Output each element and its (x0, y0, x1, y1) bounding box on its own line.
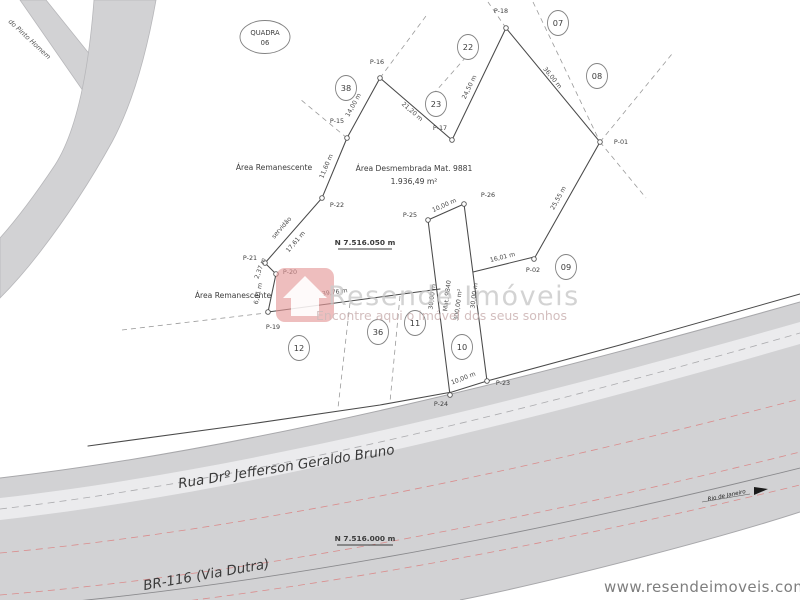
measure-36-00: 36,00 m (541, 66, 563, 90)
point-label-p21: P-21 (243, 254, 257, 262)
point-label-p17: P-17 (433, 124, 447, 132)
lot-number-38: 38 (341, 83, 351, 93)
north-coord-upper: N 7.516.050 m (335, 238, 396, 247)
point-label-p22: P-22 (330, 201, 344, 209)
measure-24-50: 24,50 m (461, 74, 479, 100)
point-label-p24: P-24 (434, 400, 448, 408)
area-remanescente-lower: Área Remanescente (195, 291, 272, 300)
point-label-p16: P-16 (370, 58, 384, 66)
point-label-p19: P-19 (266, 323, 280, 331)
area-desmembrada-title: Área Desmembrada Mat. 9881 (356, 164, 473, 173)
lot-number-09: 09 (561, 262, 571, 272)
measure-strip-top: 10,00 m (431, 197, 457, 214)
point-label-p02: P-02 (526, 266, 540, 274)
area-remanescente-upper: Área Remanescente (236, 163, 313, 172)
point-marker (504, 26, 509, 31)
point-label-p01: P-01 (614, 138, 628, 146)
north-coord-lower: N 7.516.000 m (335, 534, 396, 543)
watermark: Resende Imóveis Encontre aqui o imóvel d… (276, 268, 580, 323)
quadra-number: 06 (261, 39, 270, 47)
survey-plat-page: do Pinto Homem Rua Drº Jefferson Geraldo… (0, 0, 800, 600)
lot-number-07: 07 (553, 18, 563, 28)
point-label-p18: P-18 (494, 7, 508, 15)
point-marker (450, 138, 455, 143)
measure-strip-bottom: 10,00 m (450, 371, 477, 387)
point-label-p15: P-15 (330, 117, 344, 125)
point-marker (426, 218, 431, 223)
quadra-ellipse (240, 21, 290, 54)
survey-drawing: do Pinto Homem Rua Drº Jefferson Geraldo… (0, 0, 800, 600)
point-label-p23: P-23 (496, 379, 510, 387)
point-marker (320, 196, 325, 201)
lot-number-23: 23 (431, 99, 441, 109)
quadra-label: QUADRA (250, 29, 280, 37)
quadra-bubble: QUADRA 06 (240, 21, 290, 54)
dashed-ext-p01-se (600, 142, 646, 198)
watermark-tagline: Encontre aqui o imóvel dos seus sonhos (316, 308, 567, 323)
point-marker (485, 379, 490, 384)
dashed-ext-p16 (380, 16, 426, 78)
dashed-ext-p01-ne (600, 54, 672, 142)
point-marker (598, 140, 603, 145)
point-marker (462, 202, 467, 207)
dashed-boundaries (122, 2, 672, 408)
lot-number-36: 36 (373, 327, 383, 337)
dashed-ext-p18 (488, 2, 506, 28)
point-marker (378, 76, 383, 81)
point-label-p26: P-26 (481, 191, 495, 199)
point-label-p25: P-25 (403, 211, 417, 219)
road-band (0, 302, 800, 600)
website-url: www.resendeimoveis.com.br (604, 578, 800, 596)
top-left-streets: do Pinto Homem (0, 0, 156, 298)
servidao-label: servidão (271, 216, 294, 241)
point-marker (345, 136, 350, 141)
point-marker (448, 393, 453, 398)
lot-number-12: 12 (294, 343, 304, 353)
point-marker (266, 310, 271, 315)
measure-21-20: 21,20 m (400, 101, 424, 123)
lot-number-22: 22 (463, 42, 473, 52)
measure-17-61: 17,61 m (285, 230, 307, 254)
measure-25-55: 25,55 m (549, 185, 568, 211)
lot-number-08: 08 (592, 71, 602, 81)
dashed-ext-p19-west (122, 313, 266, 330)
bottom-road: Rua Drº Jefferson Geraldo Bruno BR-116 (… (0, 302, 800, 600)
measure-11-60: 11,60 m (318, 153, 334, 179)
point-marker (532, 257, 537, 262)
lot-number-10: 10 (457, 342, 467, 352)
area-desmembrada-value: 1.936,49 m² (391, 177, 438, 186)
